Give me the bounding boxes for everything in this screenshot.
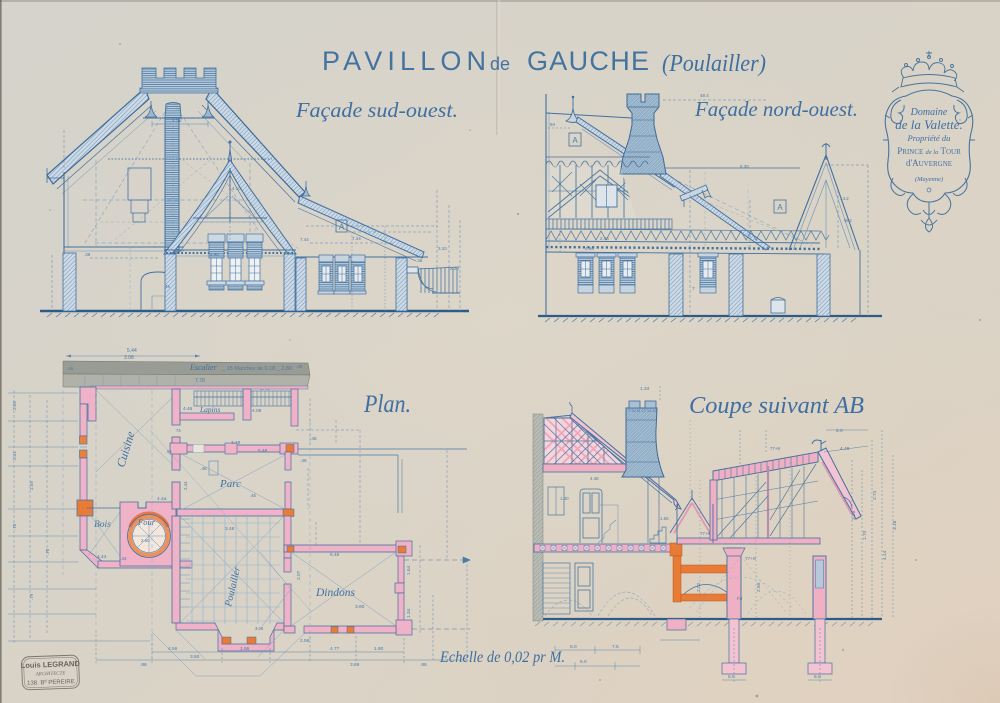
svg-text:2.28: 2.28 [851, 510, 857, 520]
svg-text:2.41: 2.41 [12, 451, 17, 460]
svg-text:A: A [777, 203, 783, 212]
svg-text:.86: .86 [420, 662, 427, 668]
svg-text:1.34: 1.34 [406, 608, 412, 618]
svg-text:7.34 M 12 14 44: 7.34 M 12 14 44 [628, 408, 658, 413]
svg-text:.46: .46 [310, 436, 317, 442]
svg-text:48.4: 48.4 [700, 93, 709, 98]
svg-text:.86: .86 [140, 662, 147, 668]
svg-text:Escalier: Escalier [189, 363, 218, 372]
svg-text:4.98: 4.98 [210, 252, 219, 257]
svg-text:7.5: 7.5 [612, 644, 619, 650]
svg-text:2.20: 2.20 [450, 266, 459, 271]
svg-text:.36: .36 [416, 258, 423, 263]
svg-text:2.26: 2.26 [12, 401, 17, 410]
svg-text:4.48: 4.48 [590, 476, 599, 481]
svg-text:Plan.: Plan. [363, 391, 411, 418]
svg-text:Lapins: Lapins [199, 405, 221, 414]
svg-text:.46: .46 [296, 364, 303, 369]
svg-text:4.44: 4.44 [97, 554, 107, 560]
svg-text:7.78: 7.78 [195, 378, 205, 384]
svg-text:3.08: 3.08 [124, 355, 134, 361]
svg-text:.46: .46 [300, 458, 307, 464]
svg-text:4.46: 4.46 [183, 406, 193, 412]
svg-text:2.60: 2.60 [141, 538, 150, 543]
svg-text:d'AUVERGNE: d'AUVERGNE [906, 158, 952, 168]
svg-text:Fd: Fd [737, 596, 743, 601]
svg-text:2.46: 2.46 [600, 236, 609, 241]
svg-text:4.4a: 4.4a [157, 496, 167, 502]
svg-text:GAUCHE: GAUCHE [527, 46, 649, 76]
svg-text:6.0: 6.0 [580, 659, 587, 665]
svg-text:8.36: 8.36 [740, 164, 749, 169]
svg-text:.46: .46 [67, 366, 74, 371]
svg-text:Façade sud-ouest.: Façade sud-ouest. [295, 98, 458, 122]
svg-text:4.48: 4.48 [840, 446, 850, 452]
svg-text:.48: .48 [200, 466, 207, 472]
svg-text:1.30: 1.30 [560, 496, 569, 501]
svg-text:6.46: 6.46 [330, 552, 340, 558]
svg-text:4.08: 4.08 [252, 408, 262, 414]
svg-text:3.08: 3.08 [255, 626, 264, 631]
svg-text:2.59: 2.59 [29, 481, 34, 490]
svg-text:.70: .70 [45, 548, 50, 555]
svg-text:1.80: 1.80 [374, 646, 384, 652]
svg-text:1.34: 1.34 [640, 386, 650, 392]
svg-text:64: 64 [167, 449, 172, 454]
svg-text:74: 74 [176, 428, 181, 433]
svg-text:3.69: 3.69 [350, 662, 360, 668]
svg-text:3.48: 3.48 [225, 526, 235, 532]
svg-text:(Mayenne): (Mayenne) [915, 176, 943, 183]
svg-text:Coupe suivant AB: Coupe suivant AB [689, 393, 864, 419]
svg-text:2.44: 2.44 [183, 481, 188, 490]
svg-text:2.50: 2.50 [756, 582, 762, 592]
svg-text:14.2: 14.2 [840, 196, 849, 201]
svg-text:1.64: 1.64 [406, 565, 412, 575]
svg-text:3.50: 3.50 [190, 654, 200, 660]
svg-text:_ 15 Marches de 0.18 _ 2.80: _ 15 Marches de 0.18 _ 2.80 [221, 366, 292, 372]
svg-text:.46: .46 [250, 493, 256, 498]
svg-text:2.52: 2.52 [696, 582, 702, 592]
svg-text:1.56: 1.56 [240, 646, 250, 652]
svg-text:77+8: 77+8 [770, 446, 780, 451]
svg-text:77+8: 77+8 [745, 556, 756, 562]
svg-text:Four: Four [137, 517, 156, 527]
svg-text:.79: .79 [29, 593, 34, 600]
svg-text:3.48: 3.48 [231, 440, 241, 446]
svg-text:4.56: 4.56 [168, 646, 178, 652]
svg-text:(Poulailler): (Poulailler) [662, 51, 766, 77]
svg-text:45: 45 [165, 284, 171, 289]
svg-text:.70: .70 [12, 523, 17, 530]
svg-text:1.70: 1.70 [862, 530, 868, 540]
svg-text:de la Valette.: de la Valette. [895, 117, 963, 132]
svg-text:2.56: 2.56 [300, 638, 310, 644]
svg-text:A: A [572, 136, 578, 145]
svg-text:Bois: Bois [94, 520, 111, 530]
svg-text:.38: .38 [84, 252, 91, 257]
svg-text:W.2: W.2 [844, 218, 852, 223]
svg-text:Echelle de 0,02 pr M.: Echelle de 0,02 pr M. [439, 649, 565, 666]
svg-text:4.14: 4.14 [882, 550, 888, 560]
svg-text:6.0: 6.0 [814, 674, 821, 680]
svg-text:3.60: 3.60 [355, 604, 365, 610]
svg-text:2.07: 2.07 [296, 570, 302, 580]
svg-text:de: de [490, 54, 510, 74]
svg-text:6.0: 6.0 [728, 674, 735, 680]
svg-text:A: A [339, 223, 345, 232]
svg-text:3.18: 3.18 [892, 520, 898, 530]
svg-text:3.10: 3.10 [438, 246, 447, 251]
svg-text:5.44: 5.44 [127, 348, 137, 354]
svg-text:2.0: 2.0 [836, 428, 843, 434]
svg-text:7.44: 7.44 [300, 237, 309, 242]
svg-text:77+8: 77+8 [700, 531, 710, 536]
svg-text:Propriété du: Propriété du [907, 133, 951, 143]
svg-text:4.77: 4.77 [330, 646, 340, 652]
svg-text:2.74: 2.74 [872, 490, 878, 500]
svg-text:.44: .44 [120, 556, 127, 562]
svg-text:5.0: 5.0 [570, 644, 577, 650]
svg-text:1.92: 1.92 [172, 118, 182, 124]
svg-text:1.56: 1.56 [660, 516, 669, 521]
svg-text:4.96: 4.96 [585, 246, 594, 251]
svg-text:94: 94 [550, 122, 556, 127]
svg-text:Façade nord-ouest.: Façade nord-ouest. [694, 97, 858, 121]
svg-text:5.48: 5.48 [258, 448, 268, 454]
svg-text:7.44: 7.44 [352, 236, 361, 241]
svg-text:4.10: 4.10 [232, 186, 241, 191]
